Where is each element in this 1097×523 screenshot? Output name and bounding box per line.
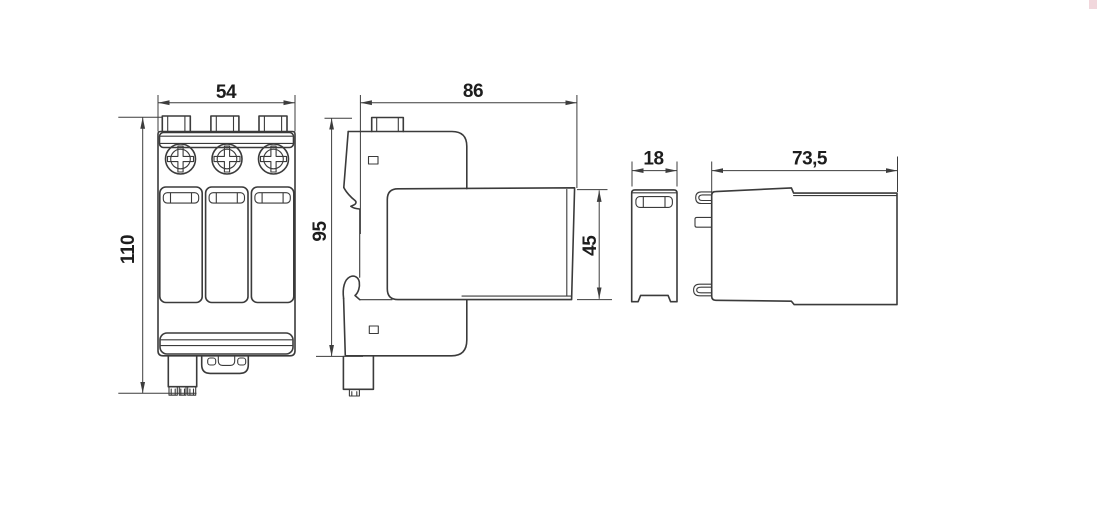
dim-label-module-height: 45: [580, 235, 601, 256]
din-upper-claw: [344, 188, 360, 210]
side-marker-hole-bottom: [369, 326, 378, 334]
front-module-2: [206, 187, 248, 303]
dim-label-front-height: 110: [118, 235, 139, 264]
front-module-3: [251, 187, 293, 303]
front-din-slider: [202, 357, 249, 374]
technical-drawing: 54 110: [0, 0, 1097, 523]
dim-front-width: 54: [158, 82, 295, 132]
front-view: [158, 116, 295, 395]
side-base-profile: [343, 132, 467, 356]
module-pin-middle: [695, 217, 712, 227]
module-front-view: [632, 190, 677, 302]
side-marker-hole-top: [369, 157, 379, 165]
dim-label-base-depth: 86: [463, 81, 483, 102]
front-body: [158, 132, 295, 356]
dim-module-height: 45: [577, 190, 612, 300]
dim-label-module-width: 18: [643, 149, 663, 170]
side-view: [343, 118, 574, 397]
dim-module-width: 18: [632, 149, 677, 187]
dim-label-base-height: 95: [310, 221, 331, 242]
dim-label-front-width: 54: [216, 82, 237, 103]
module-side-view: [694, 188, 897, 305]
module-pin-bottom: [694, 284, 712, 296]
technical-drawing-page: 54 110: [0, 0, 1097, 523]
dim-base-depth: 86: [360, 81, 577, 234]
screw-3: [259, 144, 289, 174]
corner-artifact: [1089, 0, 1097, 9]
front-bottom-terminal: [168, 357, 196, 396]
side-plug-module: [387, 188, 574, 300]
front-terminal-tabs: [162, 116, 287, 132]
front-busbar: [160, 133, 294, 148]
module-front-label-window: [636, 197, 673, 208]
side-terminal-tab: [372, 118, 404, 132]
din-lower-clip: [343, 276, 360, 300]
dim-label-module-depth: 73,5: [792, 149, 828, 170]
dim-base-height: 95: [310, 118, 363, 356]
module-pin-top: [696, 192, 712, 204]
module-side-body: [712, 188, 897, 305]
screw-1: [166, 144, 196, 174]
side-bottom-terminal: [343, 357, 373, 396]
front-module-1: [160, 187, 202, 303]
screw-2: [212, 144, 242, 174]
front-bottom-bar: [160, 333, 293, 354]
